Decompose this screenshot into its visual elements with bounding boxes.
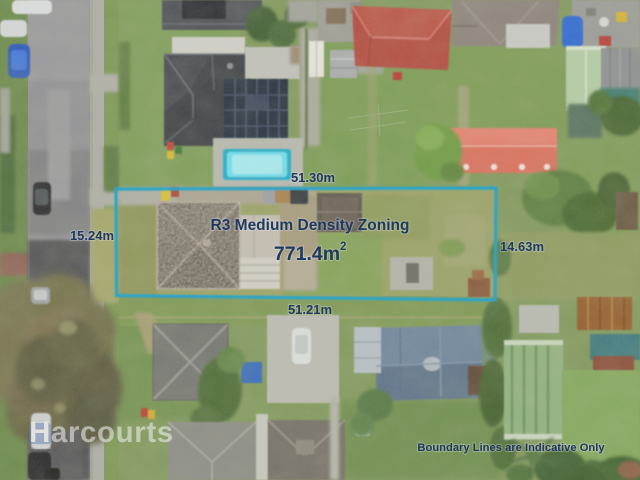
svg-text:771.4m: 771.4m [274, 243, 340, 265]
svg-text:2: 2 [340, 241, 346, 253]
svg-text:15.24m: 15.24m [70, 228, 114, 243]
svg-text:51.30m: 51.30m [291, 170, 335, 185]
svg-text:Boundary Lines are Indicative: Boundary Lines are Indicative Only [417, 442, 605, 454]
svg-text:14.63m: 14.63m [500, 239, 544, 254]
svg-text:51.21m: 51.21m [288, 302, 332, 317]
svg-text:R3 Medium Density Zoning: R3 Medium Density Zoning [211, 217, 410, 234]
svg-text:Harcourts: Harcourts [29, 416, 174, 449]
